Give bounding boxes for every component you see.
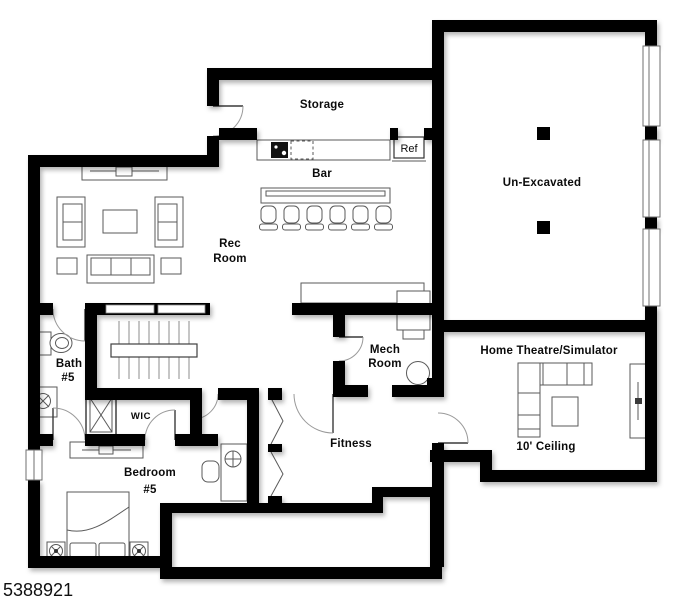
end-table-left-icon	[57, 258, 77, 274]
bar-back-counter-icon	[257, 140, 390, 160]
mech-room-door-icon	[339, 337, 363, 361]
coffee-table-icon	[103, 210, 137, 233]
bedroom5-label-line2: #5	[143, 484, 157, 496]
bedroom5-label-line1: Bedroom	[124, 467, 176, 479]
shower-icon	[86, 394, 116, 436]
support-column-icon	[537, 221, 550, 234]
bedroom-window-icon	[26, 450, 42, 480]
loveseat-left-icon	[57, 197, 85, 247]
fitness-label: Fitness	[330, 438, 372, 450]
window-icon	[643, 140, 660, 217]
sofa-icon	[87, 255, 154, 283]
storage-label: Storage	[300, 99, 344, 111]
furniture-layer	[31, 127, 650, 560]
ottoman-icon	[552, 397, 578, 426]
end-table-right-icon	[161, 258, 181, 274]
home-theatre-label: Home Theatre/Simulator	[480, 345, 618, 357]
water-heater-icon	[407, 362, 430, 385]
bed-icon	[67, 492, 129, 557]
rec-room-label-line1: Rec	[219, 238, 241, 250]
window-icon	[643, 229, 660, 306]
stair-handrail-icon	[111, 344, 197, 357]
un-excavated-label: Un-Excavated	[503, 177, 581, 189]
bar-sink-icon	[271, 142, 288, 158]
mech-room-label-line2: Room	[368, 358, 401, 370]
ceiling-note-label: 10' Ceiling	[516, 441, 575, 453]
support-column-icon	[537, 127, 550, 140]
loveseat-right-icon	[155, 197, 183, 247]
rec-room-label-line2: Room	[213, 253, 246, 265]
staircase-icon	[111, 321, 197, 379]
floor-plan-drawing: Storage Ref Bar Rec Room Un-Excavated Ba…	[0, 0, 683, 600]
bath5-label-line1: Bath	[56, 358, 82, 370]
desk-chair-icon	[202, 461, 219, 482]
desk-icon	[221, 444, 247, 501]
window-icon	[643, 46, 660, 126]
home-theatre-door-icon	[438, 413, 468, 443]
floor-plan-page: Storage Ref Bar Rec Room Un-Excavated Ba…	[0, 0, 683, 600]
wic-label: WIC	[131, 411, 151, 422]
bar-stools-icon	[260, 206, 393, 230]
dishwasher-icon	[291, 141, 313, 159]
fitness-door-icon	[294, 394, 333, 433]
mech-room-label-line1: Mech	[370, 344, 400, 356]
refrigerator-label: Ref	[400, 143, 418, 155]
bath5-label-line2: #5	[61, 372, 75, 384]
bar-label: Bar	[312, 168, 332, 180]
bath-south-door-icon	[53, 408, 85, 440]
bar-counter-icon	[261, 188, 390, 203]
listing-number: 5388921	[3, 580, 73, 600]
